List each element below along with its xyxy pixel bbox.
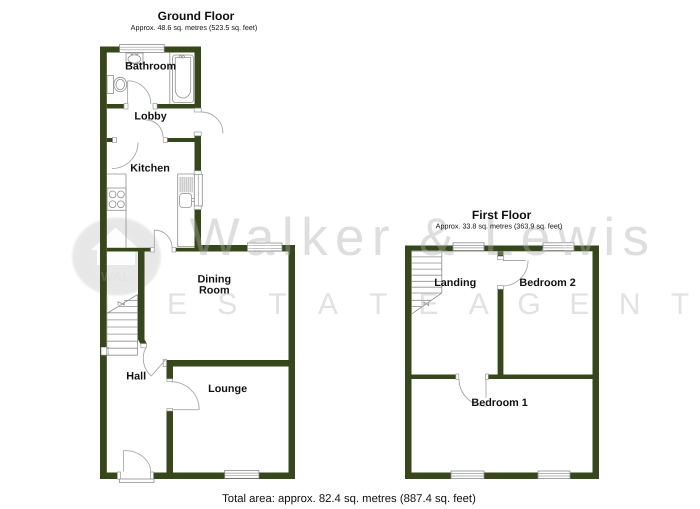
svg-text:Approx. 48.6 sq. metres (523.5: Approx. 48.6 sq. metres (523.5 sq. feet) [131,23,258,32]
svg-text:Hall: Hall [126,370,146,382]
svg-text:Room: Room [199,284,230,296]
svg-text:Walker & Lewis: Walker & Lewis [190,208,657,267]
svg-text:Landing: Landing [434,277,476,289]
svg-text:Total area: approx. 82.4 sq. m: Total area: approx. 82.4 sq. metres (887… [222,493,476,505]
svg-text:Bedroom 2: Bedroom 2 [519,277,575,289]
svg-text:T: T [369,288,387,321]
svg-text:W&L: W&L [101,269,131,284]
svg-text:Lobby: Lobby [134,111,166,123]
svg-text:A: A [469,288,489,321]
svg-text:T: T [671,288,689,321]
svg-text:E: E [418,288,438,321]
svg-text:Ground Floor: Ground Floor [158,9,235,23]
svg-text:Bedroom 1: Bedroom 1 [471,397,527,409]
svg-text:Kitchen: Kitchen [130,162,170,174]
svg-text:First Floor: First Floor [472,208,532,222]
svg-text:E: E [167,288,187,321]
svg-text:A: A [318,288,338,321]
svg-text:G: G [517,288,540,321]
svg-text:N: N [619,288,641,321]
svg-text:Lounge: Lounge [208,383,247,395]
svg-text:Approx. 33.8 sq. metres (363.9: Approx. 33.8 sq. metres (363.9 sq. feet) [436,221,563,230]
svg-text:T: T [268,288,286,321]
svg-text:E: E [569,288,589,321]
svg-text:Bathroom: Bathroom [125,60,176,72]
